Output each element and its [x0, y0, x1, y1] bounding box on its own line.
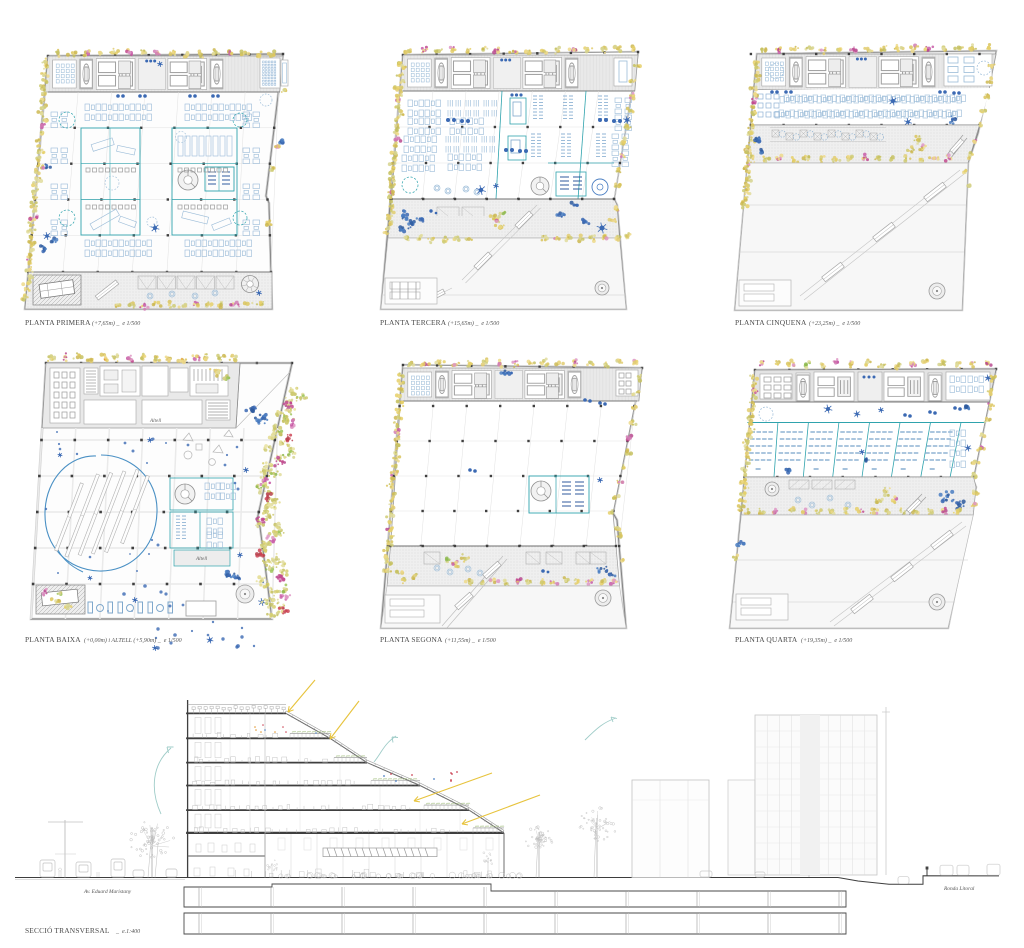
svg-text:(+11,55m) _ e 1/500: (+11,55m) _ e 1/500	[445, 637, 496, 644]
svg-text:Altell: Altell	[195, 556, 208, 562]
svg-text:PLANTA PRIMERA: PLANTA PRIMERA	[25, 318, 91, 327]
svg-text:(+23,25m) _ e 1/500: (+23,25m) _ e 1/500	[809, 320, 860, 327]
svg-text:Altell: Altell	[149, 418, 162, 424]
svg-text:(+0,00m) i ALTELL (+5,90m) _: (+0,00m) i ALTELL (+5,90m) _ e 1/500	[84, 637, 182, 644]
svg-text:PLANTA CINQUENA: PLANTA CINQUENA	[735, 318, 807, 327]
svg-text:PLANTA TERCERA: PLANTA TERCERA	[380, 318, 447, 327]
svg-text:PLANTA BAIXA: PLANTA BAIXA	[25, 635, 81, 644]
svg-text:(+19,35m) _ e 1/500: (+19,35m) _ e 1/500	[801, 637, 852, 644]
svg-text:(+7,65m) _ e 1/500: (+7,65m) _ e 1/500	[92, 320, 140, 327]
svg-text:PLANTA SEGONA: PLANTA SEGONA	[380, 635, 443, 644]
svg-text:(+15,65m) _ e 1/500: (+15,65m) _ e 1/500	[448, 320, 499, 327]
svg-text:PLANTA QUARTA: PLANTA QUARTA	[735, 635, 798, 644]
